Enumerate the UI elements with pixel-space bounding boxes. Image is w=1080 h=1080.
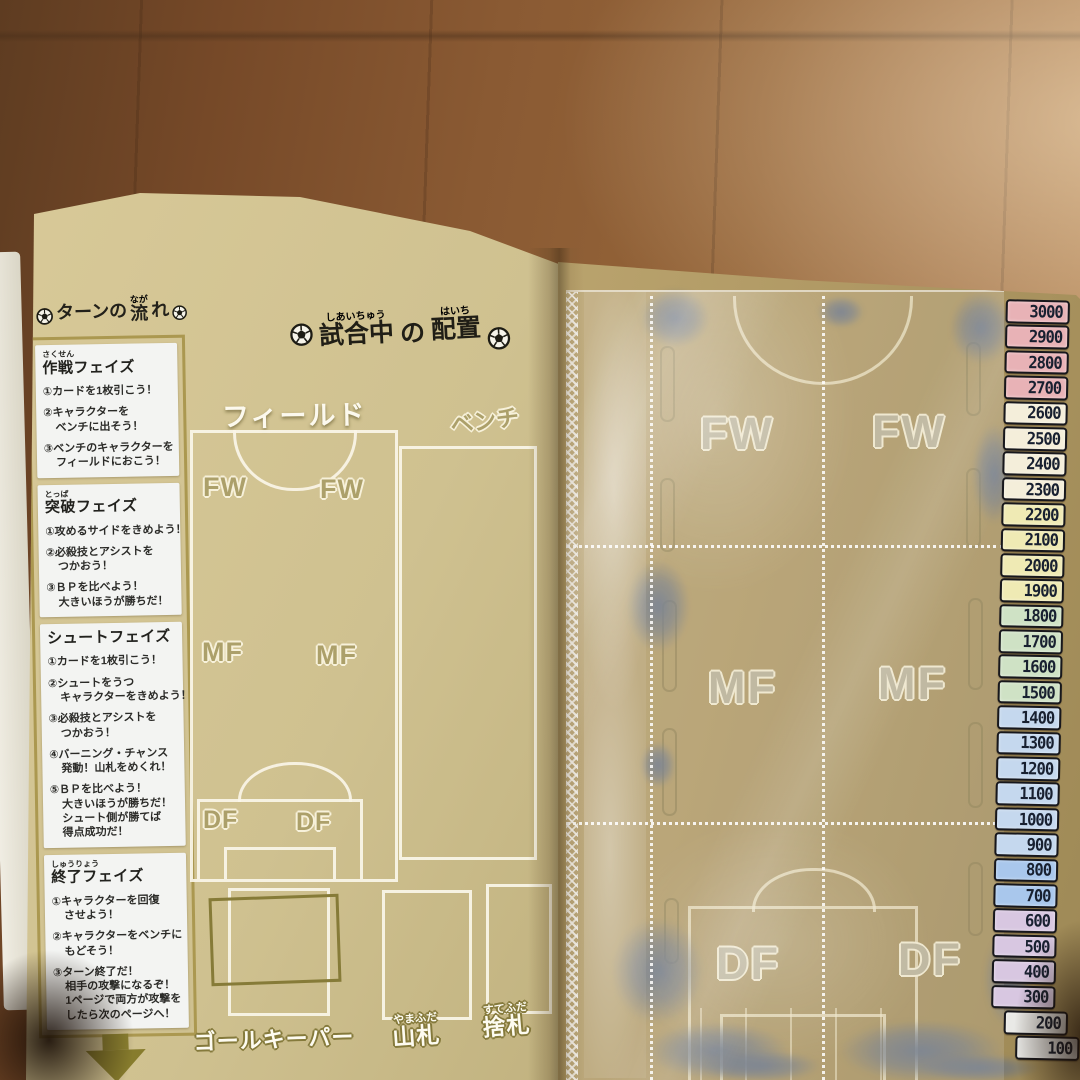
phase-title: シュートフェイズ [47,628,176,647]
deck-label-text: 山札 [392,1023,441,1049]
score-chip: 1800 [999,604,1063,629]
phase-step: ③ベンチのキャラクターをフィールドにおこう！ [44,440,173,471]
score-chip: 2900 [1005,325,1069,350]
deck-label: やまふだ 山札 [391,1012,441,1049]
phase-box: とっぱ突破フェイズ①攻めるサイドをきめよう！②必殺技とアシストをつかおう！③ＢＰ… [37,482,181,617]
score-chip-value: 2500 [1027,429,1061,449]
score-chip: 2400 [1002,452,1066,477]
position-mf-left: MF [202,637,243,668]
photo-stage: ターンの なが 流 れ さくせん作戦フェイズ①カードを1枚引こう！②キャラクター… [0,0,1080,1080]
score-chip: 2300 [1002,477,1066,502]
phase-step: ⑤ＢＰを比べよう！大きいほうが勝ちだ！シュート側が勝てば得点成功だ！ [50,781,180,840]
placement-particle: の [399,321,425,347]
score-chip: 1500 [998,680,1062,705]
score-chip: 700 [993,883,1057,908]
phase-step-line: したら次のページへ！ [54,1007,183,1024]
score-chip: 2200 [1001,502,1065,527]
score-chip: 1300 [996,731,1060,756]
phase-step: ②必殺技とアシストをつかおう！ [46,544,175,575]
score-chip-value: 1400 [1021,708,1055,728]
discard-label: すてふだ 捨札 [481,1002,532,1040]
turn-flow-title-suffix: れ [151,295,170,321]
phase-step-line: ②キャラクターをベンチに [52,928,181,945]
score-chip: 2100 [1001,528,1065,553]
soccer-ball-icon [172,305,187,320]
score-chip: 100 [1015,1036,1079,1061]
score-chip-value: 1900 [1023,581,1057,601]
placement-base-2: 配置 [430,316,481,344]
score-chip-value: 1600 [1022,657,1056,677]
pocket-seam-horizontal [566,545,1004,548]
score-chip-value: 2200 [1025,505,1059,525]
score-chip-value: 400 [1024,962,1049,982]
goalkeeper-label: ゴールキーパー [183,1019,364,1057]
score-chip: 1000 [995,807,1059,832]
score-chip-value: 100 [1047,1039,1072,1059]
score-chip: 1100 [995,782,1059,807]
phase-box: シュートフェイズ①カードを1枚引こう！②シュートをうつキャラクターをきめよう！③… [40,622,186,848]
score-chip-value: 800 [1026,860,1051,880]
phase-list-frame: さくせん作戦フェイズ①カードを1枚引こう！②キャラクターをベンチに出そう！③ベン… [27,335,197,1039]
phase-step-line: つかおう！ [46,558,175,575]
phase-step-line: ①攻めるサイドをきめよう！ [45,522,174,539]
score-chip-value: 2900 [1029,327,1063,347]
phase-box: さくせん作戦フェイズ①カードを1枚引こう！②キャラクターをベンチに出そう！③ベン… [35,343,179,478]
score-chip: 1400 [997,705,1061,730]
bench-zone [399,446,537,860]
score-chip-value: 2700 [1028,378,1062,398]
placement-base-1: 試合中 [318,320,394,349]
phase-step: ②キャラクターをベンチにもどそう！ [52,928,181,959]
soccer-ball-icon [36,308,53,325]
score-chip-value: 2600 [1027,403,1061,423]
phase-title: 終了フェイズ [51,867,180,886]
score-chip: 600 [993,908,1057,933]
score-chip: 2000 [1000,553,1064,578]
position-fw-right: FW [320,474,364,505]
score-chip: 2600 [1003,401,1067,426]
goalkeeper-slot-olive [209,894,342,986]
book-spine-shadow [528,248,584,1080]
goal-area [224,847,336,879]
phase-step-line: つかおう！ [49,724,178,741]
score-chip: 200 [1004,1010,1068,1035]
score-chip: 1200 [996,756,1060,781]
score-chip-value: 1100 [1019,784,1053,804]
phase-step-line: させよう！ [52,907,181,924]
score-chip-value: 300 [1023,987,1048,1007]
phase-step-line: ①カードを1枚引こう！ [47,653,176,670]
score-chip-value: 2300 [1025,479,1059,499]
phase-step: ②シュートをうつキャラクターをきめよう！ [48,674,177,705]
position-df-left: DF [203,806,238,835]
pocket-strip-sheen [584,292,646,1078]
score-chip-value: 2400 [1026,454,1060,474]
pocket-seam-horizontal [566,822,1004,825]
score-chip-value: 1800 [1023,606,1057,626]
soccer-ball-icon [289,323,313,347]
score-chip: 1900 [1000,578,1064,603]
turn-flow-title-ruby: なが 流 [130,295,149,322]
score-chip: 900 [994,832,1058,857]
score-chip-value: 2800 [1028,353,1062,373]
bench-label: ベンチ [448,398,521,440]
score-chip: 500 [992,934,1056,959]
score-chip-value: 1000 [1019,809,1053,829]
down-arrow-shaft [102,1034,129,1051]
soccer-ball-icon [487,326,511,350]
placement-ruby-1: しあいちゅう 試合中 [318,310,395,349]
score-chip-value: 600 [1025,911,1050,931]
score-chip: 400 [992,959,1056,984]
phase-step: ①カードを1枚引こう！ [47,653,176,670]
score-chip-value: 900 [1026,835,1051,855]
score-chip-value: 2100 [1024,530,1058,550]
score-chip-value: 1700 [1022,632,1056,652]
placement-ruby-2: はいち 配置 [430,306,482,344]
position-fw-left: FW [203,472,247,503]
score-chip: 2700 [1004,375,1068,400]
phase-step: ④バーニング・チャンス発動！山札をめくれ！ [49,746,178,777]
phase-step: ②キャラクターをベンチに出そう！ [43,404,172,435]
phase-step-line: もどそう！ [52,942,181,959]
score-chip: 2500 [1003,426,1067,451]
phase-step: ③ターン終了だ！相手の攻撃になるぞ！1ページで両方が攻撃をしたら次のページへ！ [53,964,183,1023]
score-chip: 1700 [999,629,1063,654]
score-chip-value: 1200 [1020,759,1054,779]
score-chip-value: 1300 [1020,733,1054,753]
phase-step-line: 得点成功だ！ [50,824,179,841]
phase-title: 作戦フェイズ [42,358,171,377]
score-chip: 3000 [1005,299,1069,324]
phase-step-line: 発動！山札をめくれ！ [49,760,178,777]
pocket-seam-vertical [650,296,653,1080]
turn-flow-heading: ターンの なが 流 れ [36,294,195,325]
phase-step-line: フィールドにおこう！ [44,454,173,471]
score-chip: 800 [994,858,1058,883]
phase-step-line: ベンチに出そう！ [43,419,172,436]
score-chip-value: 3000 [1029,302,1063,322]
phase-step: ①攻めるサイドをきめよう！ [45,522,174,539]
placement-heading: しあいちゅう 試合中 の はいち 配置 [289,304,511,360]
down-arrow-head [86,1049,147,1080]
score-chip: 300 [991,985,1055,1010]
score-track: 3000290028002700260025002400230022002100… [990,299,1080,1062]
field-label: フィールド [222,393,367,435]
phase-step: ①カードを1枚引こう！ [43,383,172,400]
discard-label-text: 捨札 [482,1013,532,1040]
phase-step-line: シュート側が勝てば [50,810,179,827]
turn-flow-title-base: 流 [130,304,148,322]
score-chip: 1600 [998,655,1062,680]
pocket-seam-vertical [822,296,825,1080]
phase-step: ③必殺技とアシストをつかおう！ [48,710,177,741]
phase-step-line: 大きいほうが勝ちだ！ [46,594,175,611]
phase-step-line: キャラクターをきめよう！ [48,689,177,706]
position-df-right: DF [296,808,331,837]
down-arrow-icon [85,1033,147,1080]
phase-step: ①キャラクターを回復させよう！ [52,892,181,923]
phase-box: しゅうりょう終了フェイズ①キャラクターを回復させよう！②キャラクターをベンチにも… [44,852,189,1030]
score-chip-value: 500 [1024,937,1049,957]
phase-title: 突破フェイズ [45,497,174,516]
deck-zone [382,890,472,1020]
score-chip-value: 200 [1036,1013,1061,1033]
score-chip-value: 700 [1025,886,1050,906]
score-chip-value: 1500 [1021,683,1055,703]
score-chip-value: 2000 [1024,556,1058,576]
position-mf-right: MF [316,640,357,671]
phase-step-line: ①カードを1枚引こう！ [43,383,172,400]
turn-flow-title-prefix: ターンの [56,297,128,325]
score-chip: 2800 [1004,350,1068,375]
phase-step: ③ＢＰを比べよう！大きいほうが勝ちだ！ [46,579,175,610]
